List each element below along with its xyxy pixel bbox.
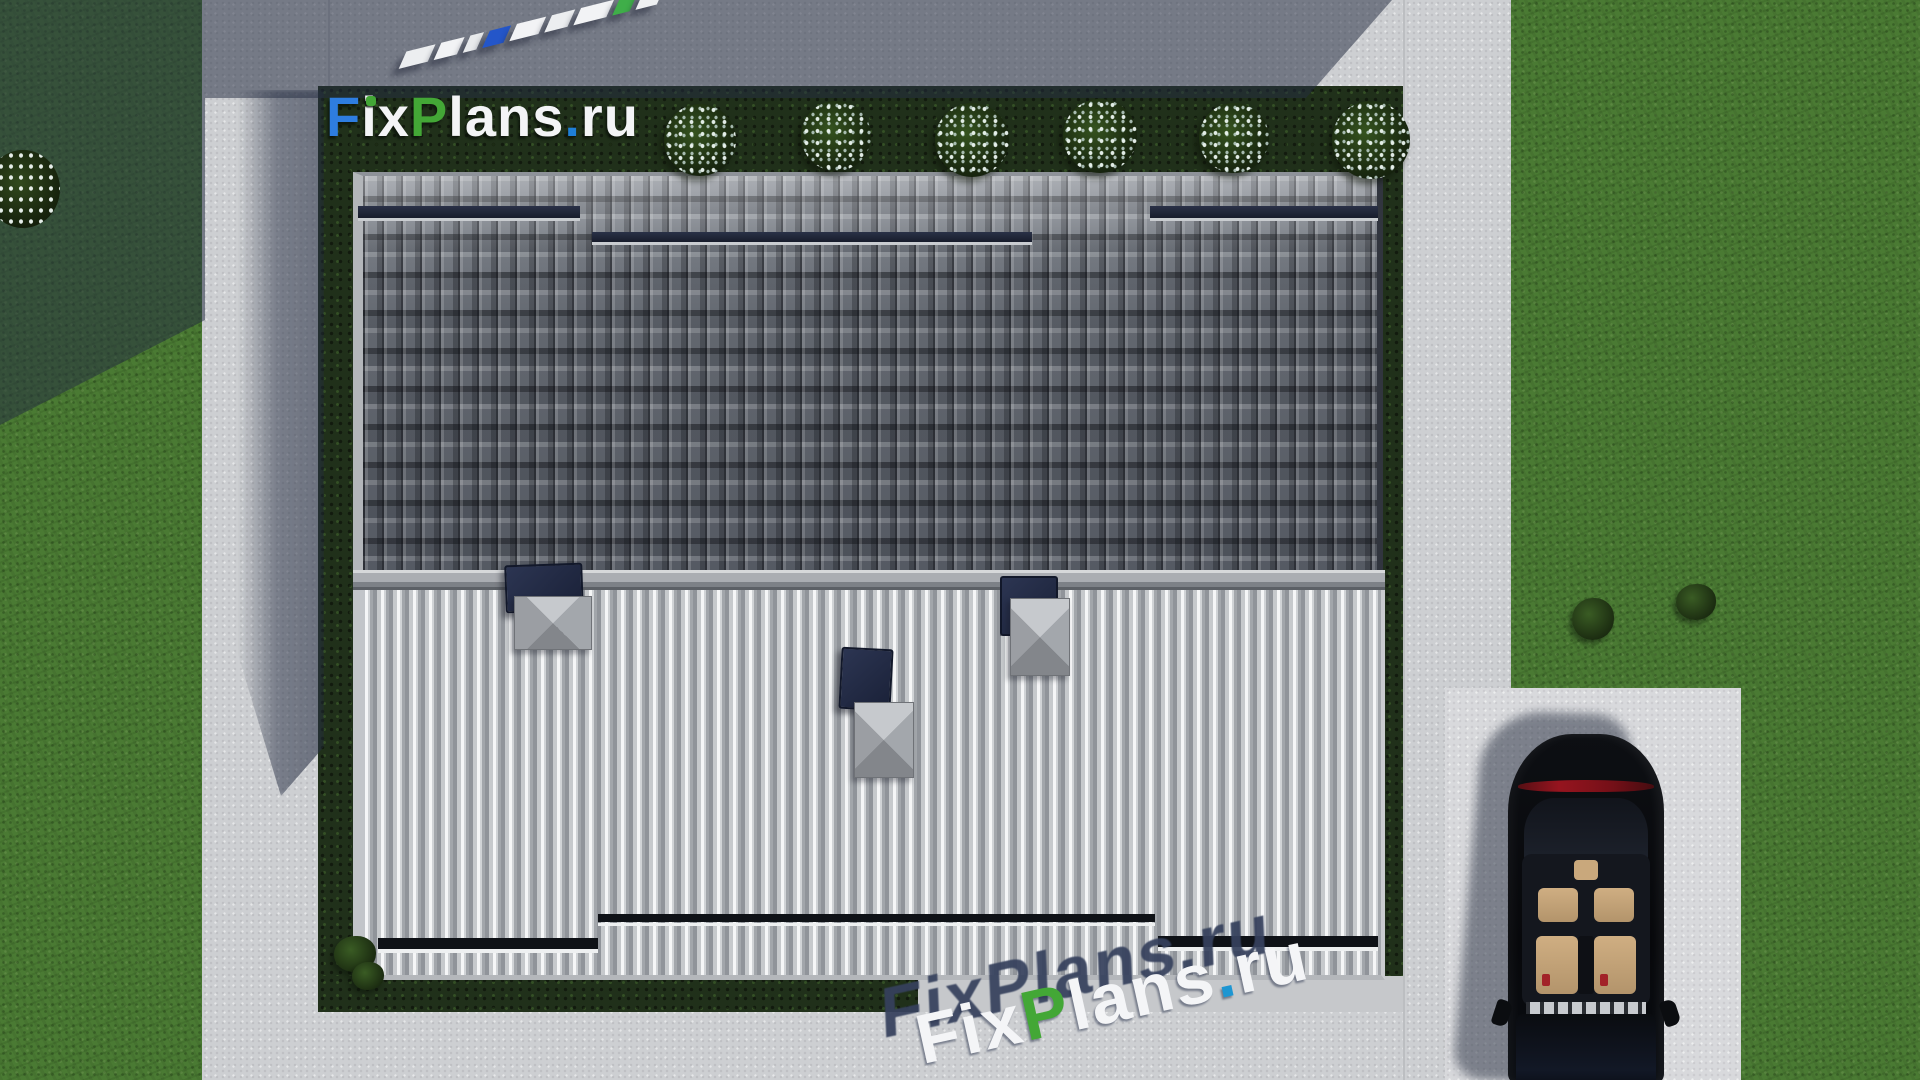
snow-guard-bar bbox=[1150, 206, 1378, 218]
car-taillight bbox=[1518, 780, 1654, 792]
garden-bush bbox=[1572, 598, 1614, 640]
car-seat-front-left bbox=[1536, 936, 1578, 994]
car-open-cabin bbox=[1522, 854, 1650, 1006]
garden-bush bbox=[1676, 584, 1716, 620]
flowering-tree bbox=[935, 103, 1009, 177]
flowering-tree bbox=[664, 104, 736, 176]
snow-guard-bar bbox=[378, 938, 598, 949]
skylight-pyramid bbox=[1010, 598, 1070, 676]
flowering-tree bbox=[1063, 99, 1137, 173]
logo-letter: F bbox=[326, 85, 361, 148]
flowering-tree bbox=[1332, 101, 1410, 179]
fixplans-logo-watermark: FixPlans.ru bbox=[326, 88, 646, 150]
snow-guard-bar bbox=[592, 232, 1032, 242]
snow-guard-bar bbox=[598, 914, 1155, 922]
hedge-strip-bottom bbox=[318, 976, 918, 1012]
car-hood bbox=[1516, 1014, 1656, 1080]
snow-guard-bar bbox=[358, 206, 580, 218]
watermark-letter: ru bbox=[1227, 916, 1316, 1008]
car-rear-armrest bbox=[1574, 860, 1598, 880]
logo-letter: ru bbox=[581, 85, 639, 148]
car-windshield-frame bbox=[1526, 1002, 1646, 1014]
car-seat-rear-right bbox=[1594, 888, 1634, 922]
flowering-tree bbox=[1199, 103, 1269, 173]
car-center-console bbox=[1578, 936, 1594, 994]
watermark-block bbox=[463, 32, 484, 53]
skylight-pyramid bbox=[854, 702, 914, 778]
logo-letter: ix bbox=[361, 85, 410, 148]
logo-letter: P bbox=[410, 85, 448, 148]
car-seat-rear-left bbox=[1538, 888, 1578, 922]
car-seat-front-right bbox=[1594, 936, 1636, 994]
aerial-house-render: FixPlans.ru FixPlans.ru FixPlans.ru bbox=[0, 0, 1920, 1080]
skylight-pyramid bbox=[514, 596, 592, 650]
logo-i-dot-green bbox=[366, 96, 376, 106]
logo-letter: lans bbox=[448, 85, 564, 148]
flowering-tree bbox=[801, 101, 871, 171]
garden-bush bbox=[352, 962, 384, 990]
logo-letter: . bbox=[564, 85, 581, 148]
house-shadow-left-path bbox=[238, 90, 324, 796]
car-top-view bbox=[1508, 734, 1664, 1080]
